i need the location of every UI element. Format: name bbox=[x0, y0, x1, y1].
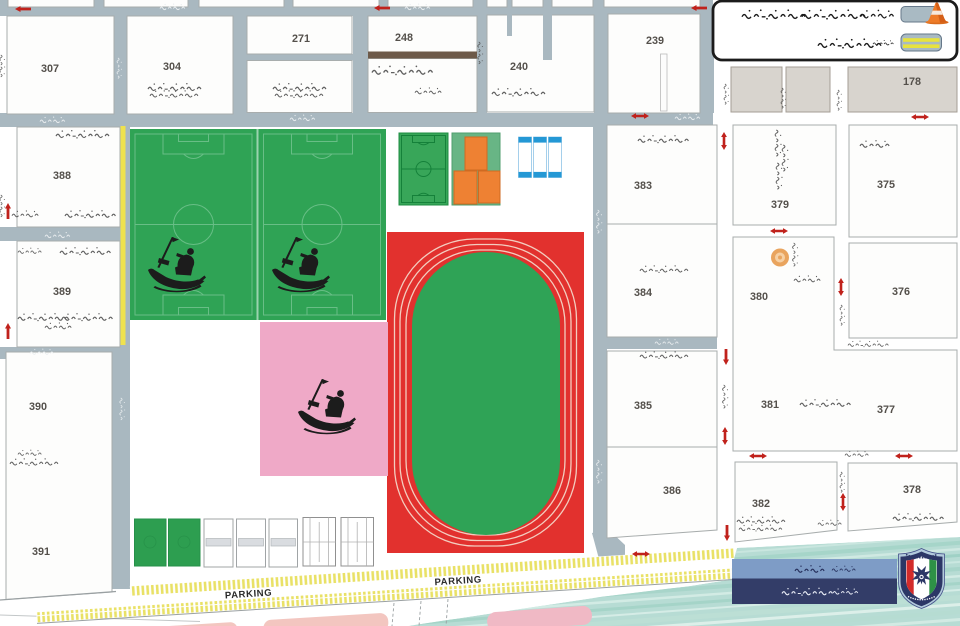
svg-text:178: 178 bbox=[903, 76, 921, 88]
svg-text:239: 239 bbox=[646, 35, 664, 47]
svg-text:383: 383 bbox=[634, 180, 652, 192]
svg-text:380: 380 bbox=[750, 291, 768, 303]
svg-text:386: 386 bbox=[663, 485, 681, 497]
svg-text:388: 388 bbox=[53, 170, 71, 182]
svg-text:389: 389 bbox=[53, 286, 71, 298]
svg-text:307: 307 bbox=[41, 63, 59, 75]
svg-text:379: 379 bbox=[771, 199, 789, 211]
svg-text:382: 382 bbox=[752, 498, 770, 510]
svg-text:377: 377 bbox=[877, 404, 895, 416]
svg-text:390: 390 bbox=[29, 401, 47, 413]
svg-text:384: 384 bbox=[634, 287, 652, 299]
svg-text:271: 271 bbox=[292, 33, 310, 45]
svg-text:304: 304 bbox=[163, 61, 181, 73]
svg-text:240: 240 bbox=[510, 61, 528, 73]
svg-text:376: 376 bbox=[892, 286, 910, 298]
svg-text:391: 391 bbox=[32, 546, 50, 558]
svg-text:378: 378 bbox=[903, 484, 921, 496]
svg-text:381: 381 bbox=[761, 399, 779, 411]
svg-text:248: 248 bbox=[395, 32, 413, 44]
svg-text:375: 375 bbox=[877, 179, 895, 191]
svg-text:385: 385 bbox=[634, 400, 652, 412]
